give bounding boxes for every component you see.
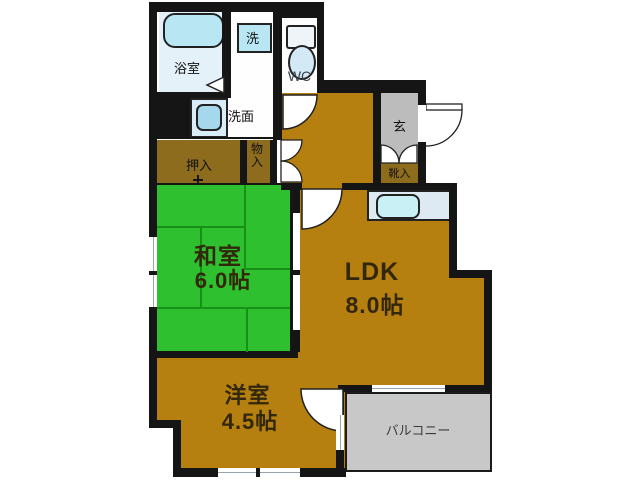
monoire-door-arc xyxy=(281,161,302,182)
floorplan-canvas: 浴室 洗 WC 洗面 玄 靴入 押入 物入 和室 6.0帖 LDK 8.0帖 洋… xyxy=(0,0,640,480)
window-tick xyxy=(256,468,260,477)
genkan-label: 玄 xyxy=(384,116,415,135)
balcony-label: バルコニー xyxy=(368,420,468,439)
yoshitsu-size-label: 4.5帖 xyxy=(200,404,300,436)
balcony-door-midline xyxy=(372,388,445,389)
monoire-door-arc xyxy=(281,140,302,161)
ldk-size-label: 8.0帖 xyxy=(328,286,422,320)
plan-symbols xyxy=(0,0,640,480)
shoebox-door-arc xyxy=(381,145,399,163)
monoire-label: 物入 xyxy=(251,143,265,169)
shoebox-label: 靴入 xyxy=(381,165,418,181)
bathroom-door-icon xyxy=(207,77,224,93)
wc-label: WC xyxy=(283,68,316,84)
window-midline xyxy=(340,415,341,450)
bathroom-label: 浴室 xyxy=(166,58,208,77)
washitsu-size-label: 6.0帖 xyxy=(168,263,278,295)
sliding-door-tick xyxy=(197,175,199,183)
ldk-label: LDK xyxy=(328,258,416,287)
washstand-label: 洗面 xyxy=(228,106,254,125)
entrance-door-leaf xyxy=(426,104,462,110)
ldk-door-arc xyxy=(302,189,342,229)
sliding-door-tick xyxy=(293,270,300,275)
window-tick xyxy=(149,271,157,275)
wc-door-arc xyxy=(283,95,317,129)
oshiire-label: 押入 xyxy=(164,155,234,174)
entrance-door-arc xyxy=(426,110,462,146)
shoebox-door-arc xyxy=(399,145,417,163)
entrance-doorway xyxy=(418,105,426,142)
laundry-label: 洗 xyxy=(237,28,268,47)
